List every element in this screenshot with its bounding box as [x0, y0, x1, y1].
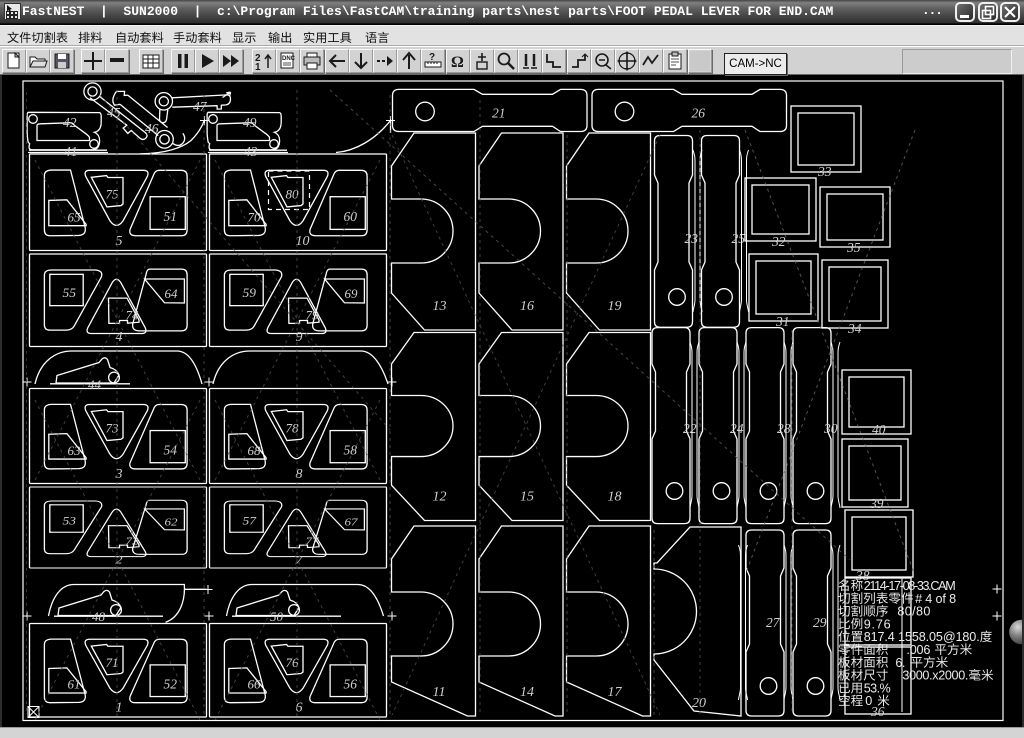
svg-text:26: 26 — [692, 106, 706, 121]
svg-text:1: 1 — [255, 62, 261, 72]
svg-text:15: 15 — [520, 490, 534, 505]
svg-text:27: 27 — [766, 615, 781, 630]
svg-text:34: 34 — [847, 321, 862, 336]
svg-text:14: 14 — [520, 685, 534, 700]
svg-text:20: 20 — [692, 696, 706, 711]
svg-text:10: 10 — [296, 233, 310, 249]
svg-text:39: 39 — [869, 496, 884, 511]
svg-text:48: 48 — [92, 609, 106, 624]
svg-text:43: 43 — [244, 144, 258, 159]
svg-text:59: 59 — [243, 285, 257, 300]
svg-text:.006: .006 — [906, 643, 930, 657]
svg-text:3: 3 — [114, 467, 122, 482]
svg-text:61: 61 — [68, 678, 81, 692]
svg-text:62: 62 — [165, 515, 178, 528]
svg-text:47: 47 — [193, 99, 208, 114]
svg-text:54: 54 — [164, 442, 178, 457]
svg-text:Ω: Ω — [451, 54, 464, 71]
svg-text:24: 24 — [730, 421, 744, 436]
svg-text:68: 68 — [248, 443, 262, 458]
svg-text:60: 60 — [344, 209, 358, 224]
svg-text:11: 11 — [433, 685, 446, 700]
svg-text:67: 67 — [345, 515, 359, 528]
svg-text:72: 72 — [125, 534, 138, 547]
svg-text:69: 69 — [345, 287, 359, 301]
svg-text:23: 23 — [685, 231, 699, 246]
svg-text:12: 12 — [433, 490, 447, 505]
svg-text:80/80: 80/80 — [897, 605, 930, 619]
svg-text:18: 18 — [608, 490, 622, 505]
svg-text:56: 56 — [344, 676, 358, 691]
svg-text:63: 63 — [68, 443, 82, 458]
svg-text:64: 64 — [165, 287, 179, 301]
svg-text:66: 66 — [248, 678, 262, 692]
svg-text:46: 46 — [145, 121, 159, 136]
svg-text:19: 19 — [608, 299, 622, 314]
svg-text:55: 55 — [63, 285, 77, 300]
svg-text:41: 41 — [64, 144, 78, 159]
svg-text:51: 51 — [164, 209, 177, 224]
svg-text:49: 49 — [243, 115, 257, 130]
svg-text:22: 22 — [683, 421, 697, 436]
svg-text:52: 52 — [164, 676, 178, 691]
svg-text:53: 53 — [62, 515, 75, 528]
svg-text:17: 17 — [608, 685, 623, 700]
svg-text:31: 31 — [775, 314, 790, 329]
svg-text:28: 28 — [777, 421, 791, 436]
svg-text:?: ? — [429, 52, 435, 63]
svg-text:57: 57 — [243, 515, 257, 528]
svg-text:3000.x2000.: 3000.x2000. — [902, 669, 968, 683]
svg-text:DNC: DNC — [282, 56, 296, 62]
svg-text:74: 74 — [126, 309, 140, 323]
svg-text:29: 29 — [813, 615, 827, 630]
svg-text:44: 44 — [88, 377, 102, 392]
svg-text:0: 0 — [865, 694, 872, 708]
svg-text:40: 40 — [872, 422, 886, 437]
svg-text:30: 30 — [823, 421, 838, 436]
svg-text:16: 16 — [520, 299, 534, 314]
svg-text:32: 32 — [771, 234, 786, 249]
svg-text:21: 21 — [492, 106, 506, 121]
svg-text:42: 42 — [63, 115, 77, 130]
svg-text:35: 35 — [846, 240, 861, 255]
svg-text:65: 65 — [68, 209, 81, 224]
svg-text:45: 45 — [107, 105, 121, 120]
svg-text:79: 79 — [306, 309, 320, 323]
svg-text:50: 50 — [270, 609, 284, 624]
svg-text:13: 13 — [433, 299, 447, 314]
svg-text:70: 70 — [248, 209, 261, 224]
svg-text:33: 33 — [817, 164, 832, 179]
svg-text:58: 58 — [344, 442, 358, 457]
svg-text:77: 77 — [306, 534, 320, 547]
svg-text:25: 25 — [732, 231, 746, 246]
